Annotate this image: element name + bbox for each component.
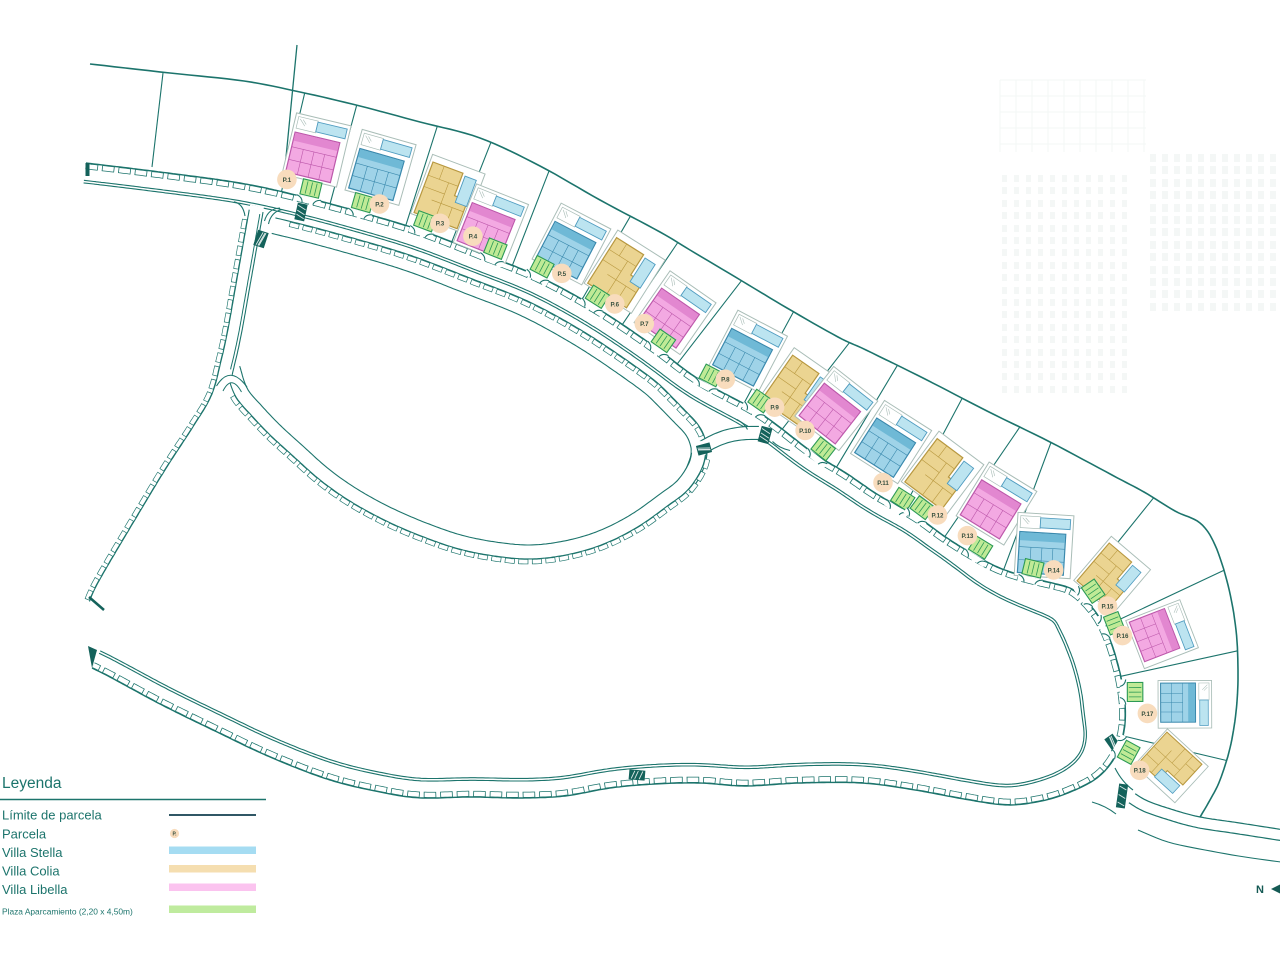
svg-text:P.11: P.11: [877, 480, 889, 487]
svg-text:N: N: [1256, 884, 1264, 896]
svg-text:P.10: P.10: [799, 428, 811, 435]
svg-text:Villa Libella: Villa Libella: [2, 882, 68, 897]
svg-text:P.5: P.5: [558, 271, 567, 278]
svg-text:P.3: P.3: [436, 221, 445, 228]
svg-text:Villa Stella: Villa Stella: [2, 845, 63, 860]
svg-text:P.18: P.18: [1134, 768, 1146, 775]
svg-text:Leyenda: Leyenda: [2, 775, 62, 792]
svg-text:P.6: P.6: [611, 301, 620, 308]
svg-text:P.9: P.9: [770, 405, 779, 412]
svg-text:P.7: P.7: [640, 321, 649, 328]
svg-text:P.1: P.1: [283, 177, 292, 184]
svg-text:P.14: P.14: [1048, 567, 1060, 574]
svg-text:Plaza Aparcamiento (2,20 x 4,5: Plaza Aparcamiento (2,20 x 4,50m): [2, 907, 133, 917]
svg-text:P.13: P.13: [961, 533, 973, 540]
svg-text:P.8: P.8: [721, 377, 730, 384]
svg-text:Parcela: Parcela: [2, 827, 47, 842]
svg-text:P.12: P.12: [932, 512, 944, 519]
svg-text:P.15: P.15: [1102, 604, 1114, 611]
svg-text:P.: P.: [172, 832, 177, 838]
svg-text:Límite de parcela: Límite de parcela: [2, 808, 102, 823]
svg-text:P.16: P.16: [1116, 633, 1128, 640]
svg-text:P.4: P.4: [469, 234, 478, 241]
svg-text:Villa Colia: Villa Colia: [2, 864, 60, 879]
svg-text:P.17: P.17: [1141, 711, 1153, 718]
svg-text:P.2: P.2: [375, 201, 384, 208]
